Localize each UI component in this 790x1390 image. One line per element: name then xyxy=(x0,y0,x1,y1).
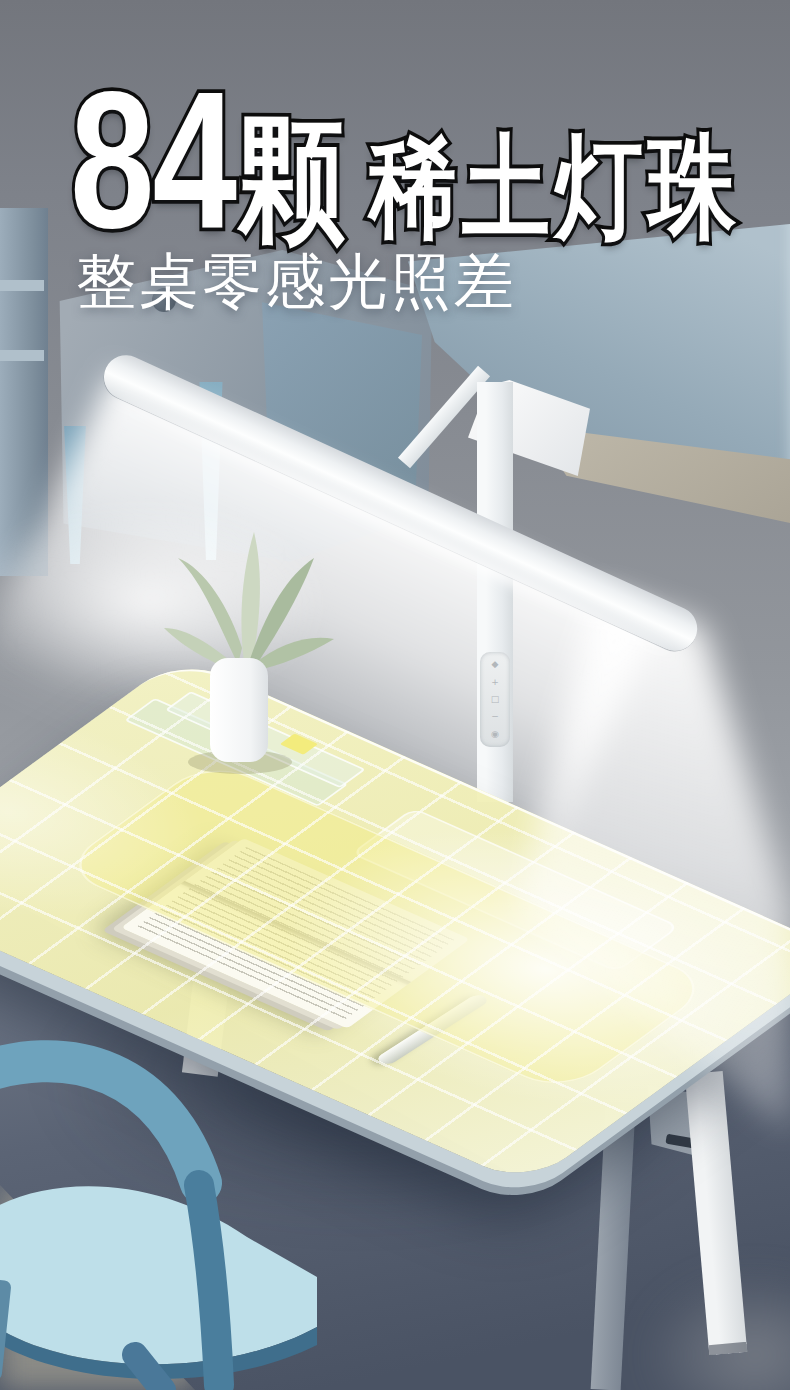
brightness-down-icon: − xyxy=(491,712,499,721)
power-icon: ◉ xyxy=(491,730,499,739)
shelf-slat xyxy=(0,350,44,361)
brightness-up-icon: + xyxy=(491,678,499,687)
headline: 84 颗 稀土灯珠 xyxy=(70,8,741,236)
potted-plant xyxy=(148,512,358,774)
chair-seat xyxy=(0,1186,317,1364)
headline-count: 84 xyxy=(70,84,235,236)
lamp-control-panel: ◆ + □ − ◉ xyxy=(480,652,510,747)
headline-feature: 稀土灯珠 xyxy=(369,137,741,236)
plant-pot xyxy=(210,658,268,762)
auto-mode-icon: ◆ xyxy=(492,660,499,669)
headline-unit: 颗 xyxy=(239,125,345,236)
chair-back-band xyxy=(0,1061,201,1183)
subtitle: 整桌零感光照差 xyxy=(76,242,517,323)
shelf-slat xyxy=(0,280,44,291)
scene-mode-icon: □ xyxy=(491,695,500,704)
chair xyxy=(0,1025,345,1390)
lamp-ad-hero-image: ◆ + □ − ◉ 84 颗 稀土灯珠 整桌零感光照差 xyxy=(0,0,790,1390)
